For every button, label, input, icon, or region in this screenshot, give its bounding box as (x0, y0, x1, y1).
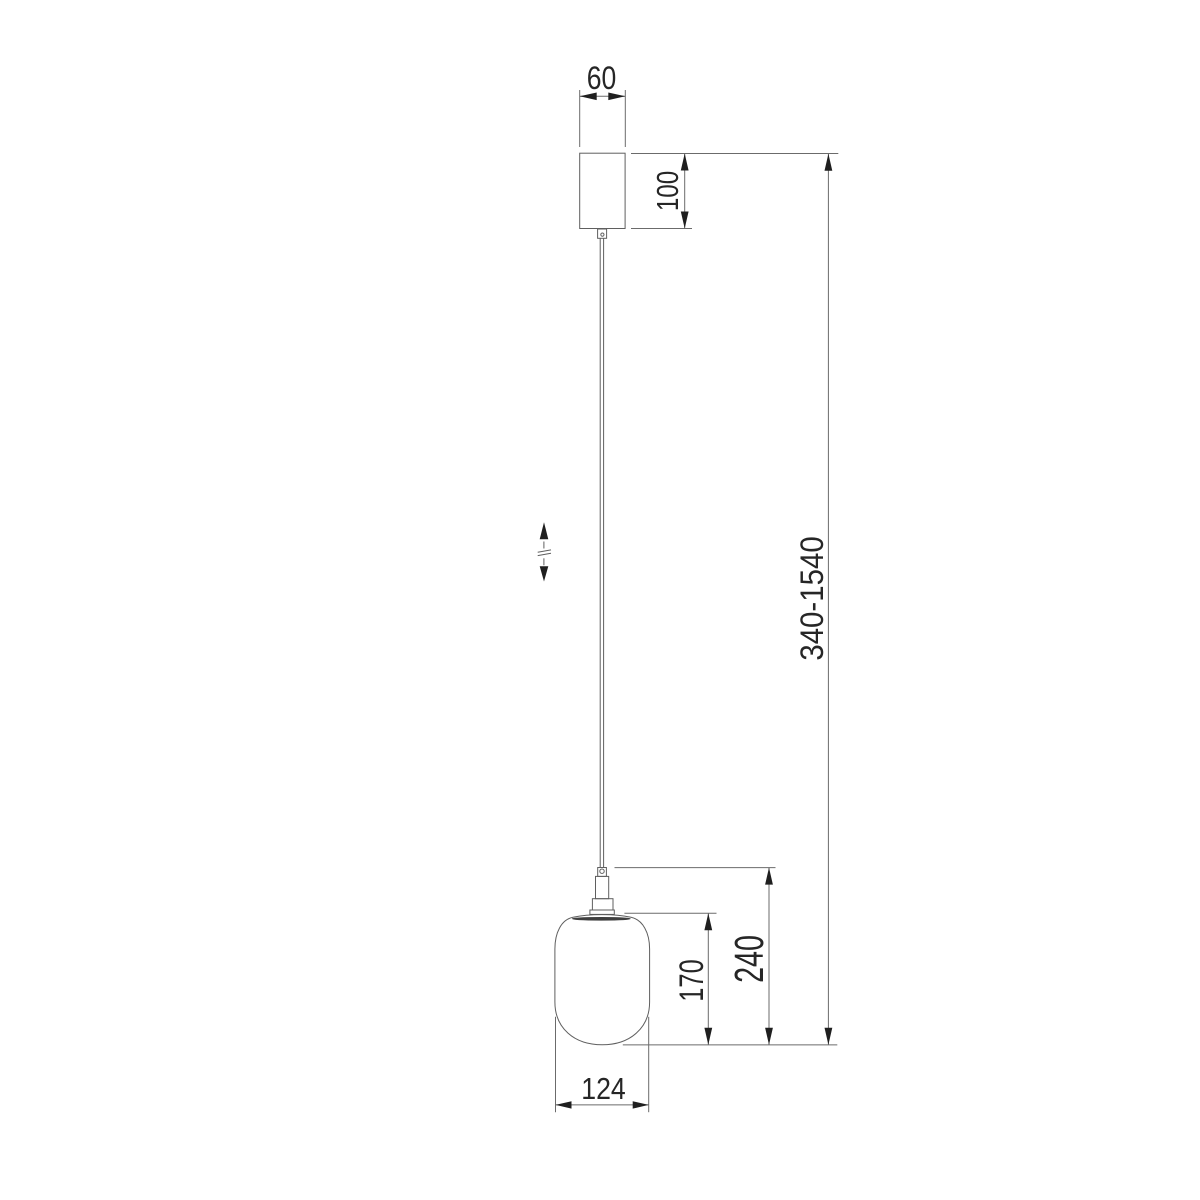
svg-text:240: 240 (727, 935, 772, 983)
svg-text:170: 170 (674, 959, 711, 1002)
svg-text:124: 124 (581, 1072, 625, 1106)
svg-text:340-1540: 340-1540 (794, 536, 830, 660)
svg-text:100: 100 (650, 171, 685, 211)
svg-text:60: 60 (587, 61, 617, 97)
